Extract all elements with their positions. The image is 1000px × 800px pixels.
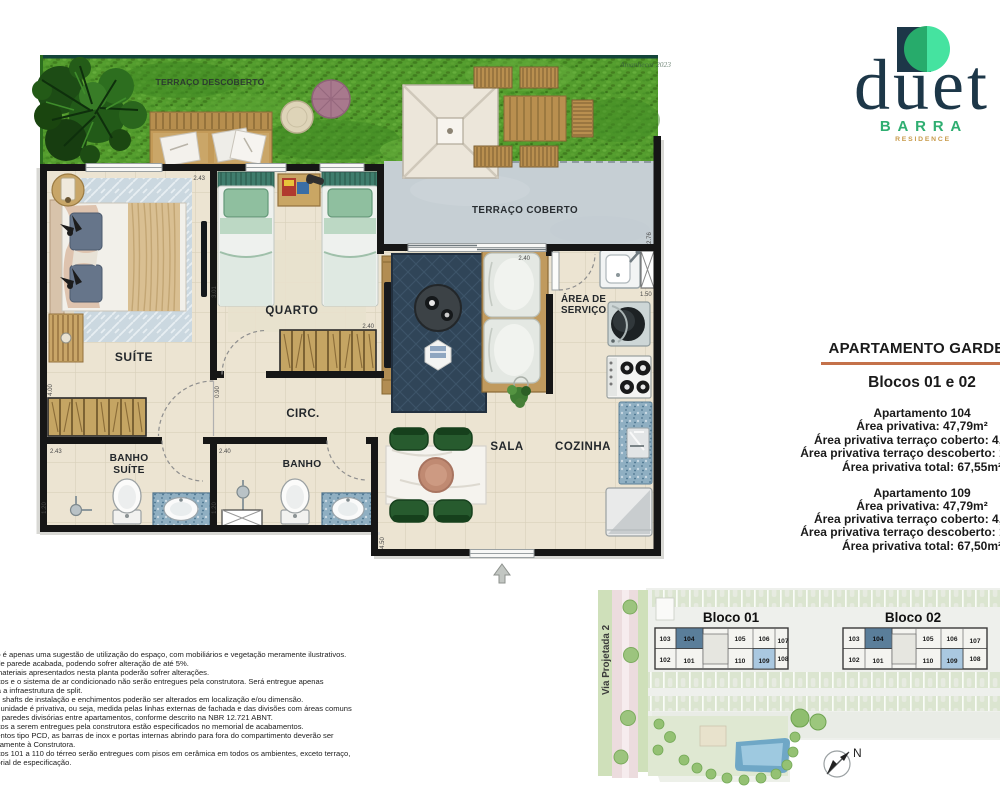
svg-text:COZINHA: COZINHA bbox=[555, 441, 611, 453]
svg-text:4.50: 4.50 bbox=[380, 537, 386, 549]
svg-text:110: 110 bbox=[735, 658, 746, 665]
svg-text:QUARTO: QUARTO bbox=[265, 305, 318, 317]
svg-text:104: 104 bbox=[872, 636, 883, 643]
svg-text:SALA: SALA bbox=[490, 441, 523, 453]
svg-text:BARRA: BARRA bbox=[880, 118, 968, 135]
svg-text:101: 101 bbox=[872, 658, 883, 665]
svg-text:2.76: 2.76 bbox=[647, 232, 653, 244]
svg-text:Bloco 01: Bloco 01 bbox=[703, 610, 760, 625]
svg-text:106: 106 bbox=[946, 636, 957, 643]
svg-text:SUÍTE: SUÍTE bbox=[113, 463, 145, 476]
svg-text:TERRAÇO COBERTO: TERRAÇO COBERTO bbox=[472, 205, 578, 216]
svg-text:109: 109 bbox=[758, 658, 769, 665]
svg-text:1.50: 1.50 bbox=[640, 292, 652, 298]
svg-text:ÁREA DE: ÁREA DE bbox=[561, 293, 606, 305]
svg-text:3.01: 3.01 bbox=[212, 286, 218, 298]
svg-text:1.20: 1.20 bbox=[42, 502, 48, 514]
svg-text:0.90: 0.90 bbox=[215, 386, 221, 398]
svg-text:106: 106 bbox=[758, 636, 769, 643]
svg-text:SERVIÇO: SERVIÇO bbox=[561, 305, 606, 316]
svg-text:108: 108 bbox=[969, 656, 980, 663]
svg-text:103: 103 bbox=[848, 636, 859, 643]
svg-text:105: 105 bbox=[734, 636, 745, 643]
svg-text:N: N bbox=[853, 746, 862, 760]
svg-text:107: 107 bbox=[969, 638, 980, 645]
svg-text:CIRC.: CIRC. bbox=[286, 408, 319, 420]
svg-text:BANHO: BANHO bbox=[110, 453, 149, 464]
svg-text:2.40: 2.40 bbox=[219, 449, 231, 455]
svg-text:SUÍTE: SUÍTE bbox=[115, 349, 153, 364]
svg-text:Bloco 02: Bloco 02 bbox=[885, 610, 941, 625]
svg-text:2.40: 2.40 bbox=[362, 324, 374, 330]
svg-text:110: 110 bbox=[923, 658, 934, 665]
svg-text:Via Projetada 2: Via Projetada 2 bbox=[601, 624, 612, 695]
svg-text:101: 101 bbox=[683, 658, 694, 665]
svg-text:107: 107 bbox=[777, 638, 788, 645]
svg-text:108: 108 bbox=[777, 656, 788, 663]
svg-text:102: 102 bbox=[659, 657, 670, 664]
svg-text:105: 105 bbox=[922, 636, 933, 643]
svg-text:109: 109 bbox=[946, 658, 957, 665]
svg-text:duet: duet bbox=[854, 45, 990, 125]
svg-text:Amanhecer 2023: Amanhecer 2023 bbox=[619, 60, 671, 69]
svg-text:103: 103 bbox=[659, 636, 670, 643]
svg-text:BANHO: BANHO bbox=[283, 459, 322, 470]
svg-text:2.43: 2.43 bbox=[193, 176, 205, 182]
svg-text:2.43: 2.43 bbox=[50, 449, 62, 455]
svg-text:104: 104 bbox=[683, 636, 694, 643]
svg-text:4.00: 4.00 bbox=[48, 384, 54, 396]
svg-text:102: 102 bbox=[848, 657, 859, 664]
svg-text:2.40: 2.40 bbox=[518, 256, 530, 262]
svg-text:RESIDENCE: RESIDENCE bbox=[895, 136, 951, 143]
svg-text:1.20: 1.20 bbox=[212, 502, 218, 514]
svg-text:TERRAÇO DESCOBERTO: TERRAÇO DESCOBERTO bbox=[156, 77, 265, 87]
